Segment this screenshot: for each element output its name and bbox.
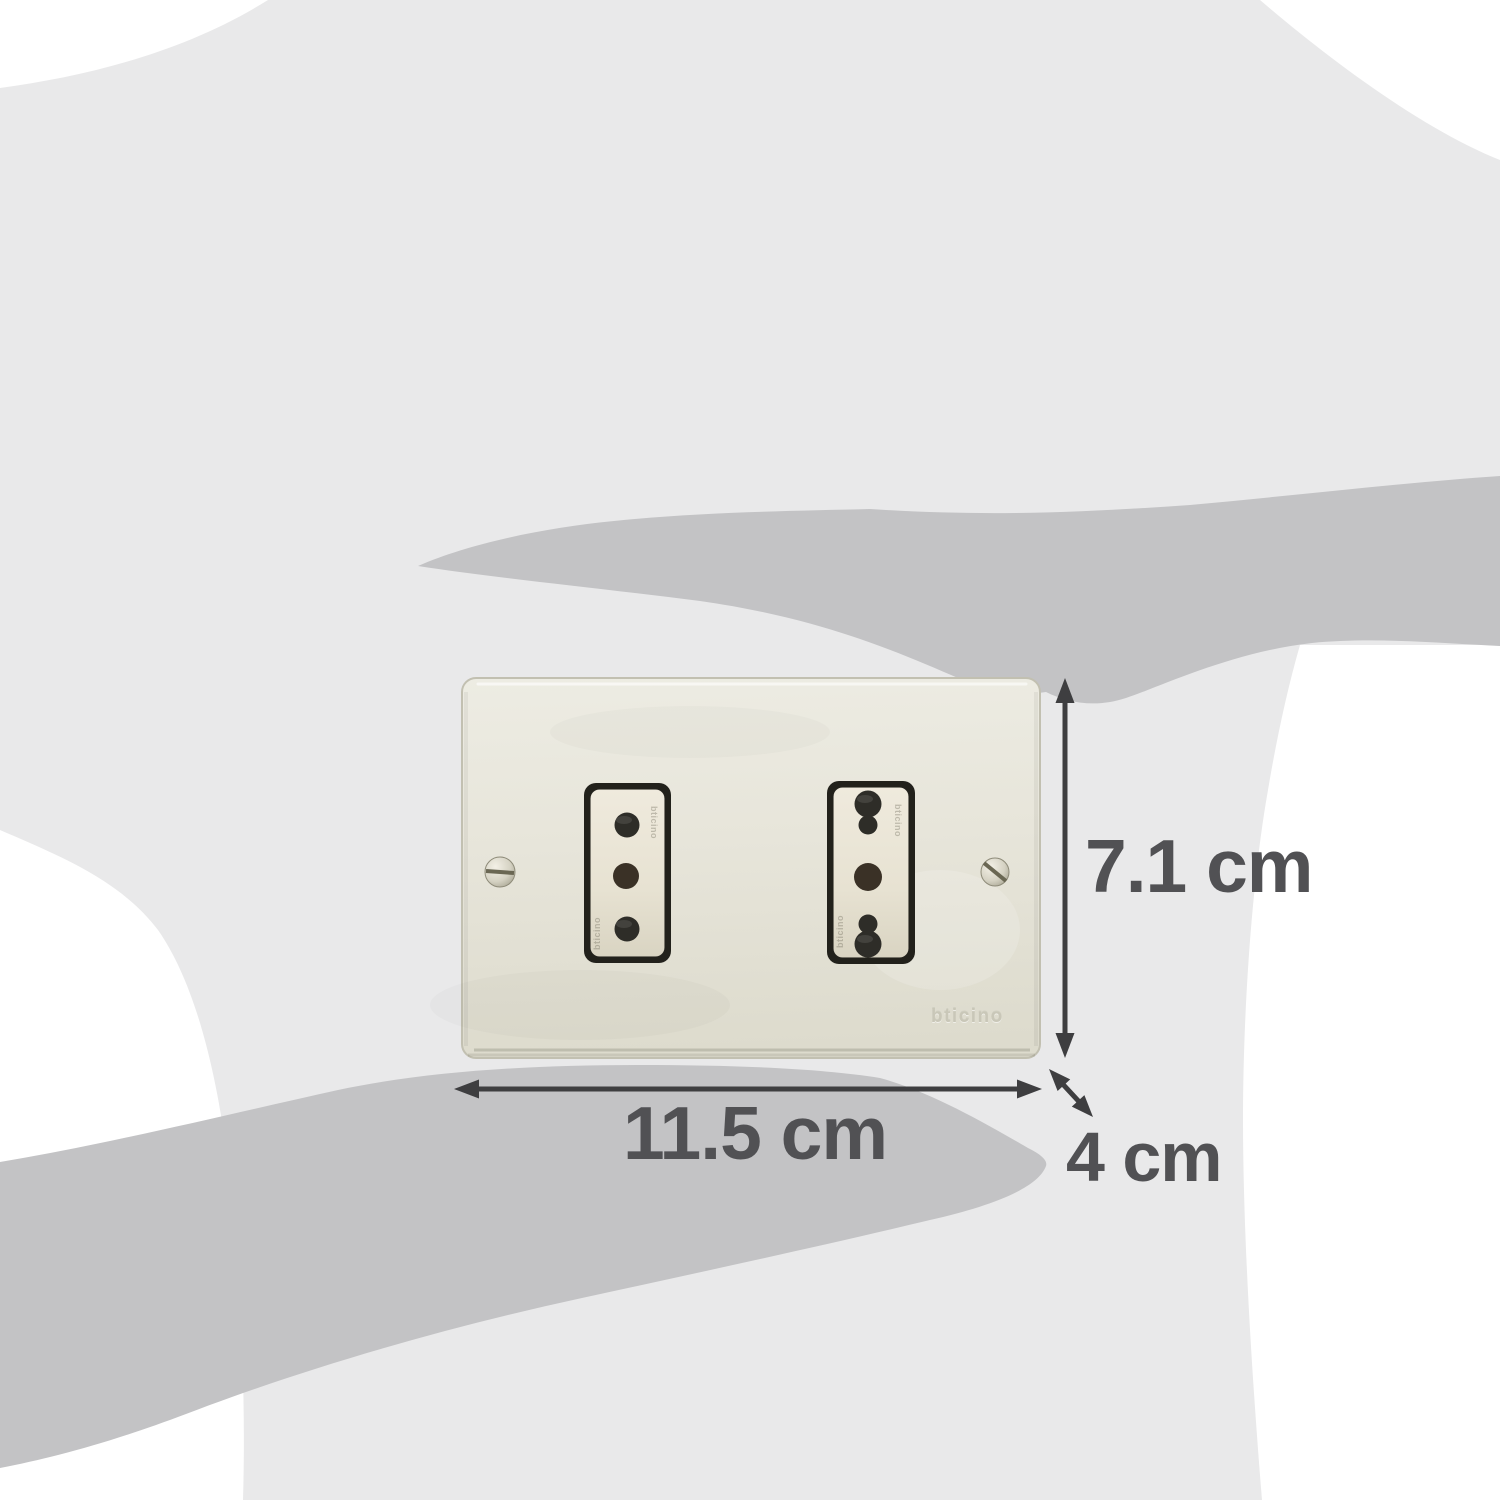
left-socket-hole-bottom: [615, 917, 640, 942]
left-socket-emboss-text: bticino: [592, 917, 602, 950]
left-socket-hole-top: [615, 813, 640, 838]
right-socket-hole-top-small: [859, 816, 878, 835]
hole-highlight: [857, 935, 873, 943]
right-socket-emboss-text: bticino: [893, 804, 903, 837]
plate-smudge: [550, 706, 830, 758]
hole-highlight: [857, 795, 873, 803]
height-dimension-label: 7.1 cm: [1085, 829, 1313, 904]
width-dimension-label: 11.5 cm: [555, 1096, 955, 1171]
right-socket-hole-middle: [854, 863, 882, 891]
right-socket-emboss-text: bticino: [835, 915, 845, 948]
right-screw-icon: [981, 858, 1009, 886]
left-socket-emboss-text: bticino: [649, 806, 659, 839]
scene-graphic: bticino bticino bticino bticino: [0, 0, 1500, 1500]
hole-highlight: [616, 920, 632, 928]
product-dimension-image: bticino bticino bticino bticino: [0, 0, 1500, 1500]
brand-emboss-text: bticino: [931, 1007, 1004, 1026]
left-socket-icon: bticino bticino: [584, 783, 671, 963]
right-socket-icon: bticino bticino: [827, 781, 915, 964]
plate-smudge: [430, 970, 730, 1040]
depth-dimension-label: 4 cm: [1066, 1122, 1222, 1192]
right-socket-hole-bottom-large: [855, 931, 882, 958]
right-socket-hole-top-large: [855, 791, 882, 818]
wall-plate: bticino bticino bticino bticino: [430, 678, 1040, 1058]
hole-highlight: [616, 816, 632, 824]
left-socket-hole-middle: [613, 863, 639, 889]
left-screw-icon: [485, 857, 515, 887]
